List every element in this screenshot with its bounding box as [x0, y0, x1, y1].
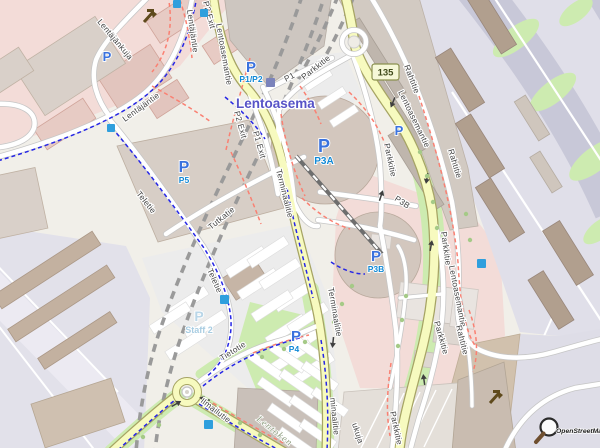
place-label-lentoasema: Lentoasema: [236, 96, 315, 111]
parking-label-staff2: Staff 2: [185, 325, 213, 335]
parking-icon-nw: P: [103, 49, 112, 64]
map-canvas[interactable]: Lentoasemantie Lentoasemantie Lentoasema…: [0, 0, 600, 448]
osm-logo-text: OpenStreetMap: [556, 428, 600, 435]
entrance-icon: [173, 0, 181, 8]
parking-icon-staff2: P: [194, 308, 203, 324]
parking-icon-p5: P: [179, 159, 190, 176]
parking-icon-parkkitie: P: [395, 123, 404, 138]
entrance-icon: [220, 295, 229, 304]
parking-entrance-icon: [266, 78, 275, 87]
parking-label-p3b: P3B: [368, 264, 385, 274]
entrance-icon: [477, 259, 486, 268]
parking-label-p1p2: P1/P2: [239, 74, 262, 84]
map-viewport[interactable]: Lentoasemantie Lentoasemantie Lentoasema…: [0, 0, 600, 448]
parking-icon-p3b: P: [371, 248, 381, 265]
entrance-icon: [107, 124, 115, 132]
route-badge-135: 135: [372, 64, 399, 80]
roundabout-south: [176, 381, 198, 403]
route-badge-text: 135: [378, 68, 395, 79]
parking-icon-p3a: P: [318, 136, 330, 156]
entrance-icon: [200, 9, 208, 17]
parking-label-p3a: P3A: [314, 156, 333, 167]
parking-icon-p4: P: [291, 328, 301, 345]
entrance-icon: [204, 420, 213, 429]
parking-label-p5: P5: [179, 175, 190, 185]
parking-label-p4: P4: [289, 344, 300, 354]
